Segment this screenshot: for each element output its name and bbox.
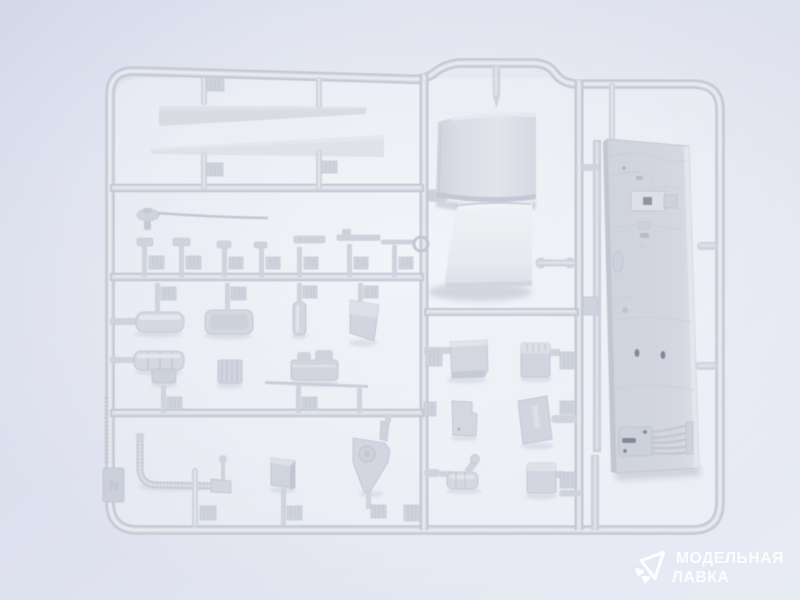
svg-text:N: N	[110, 479, 119, 493]
svg-text:ЛАВКА: ЛАВКА	[672, 569, 729, 586]
svg-text:МОДЕЛЬНАЯ: МОДЕЛЬНАЯ	[676, 550, 784, 567]
